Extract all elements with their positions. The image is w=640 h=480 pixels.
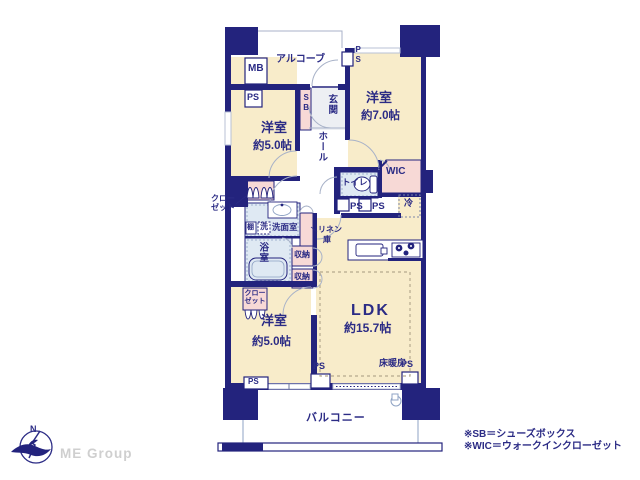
label-hall: ホール bbox=[316, 131, 326, 163]
label-shoebox: SB bbox=[301, 93, 310, 113]
pillar-east-mid bbox=[426, 170, 433, 193]
wall-hall-west bbox=[295, 84, 300, 151]
kitchen-sink bbox=[356, 244, 383, 256]
linen-closet-box bbox=[300, 213, 313, 246]
closet-south-line1: クロー bbox=[245, 290, 266, 297]
toilet-tank bbox=[370, 176, 377, 193]
wall-ldk-west bbox=[313, 213, 317, 286]
pillar-bottom-left bbox=[223, 388, 258, 420]
bird-wing-icon bbox=[28, 440, 38, 446]
pillar-top-right bbox=[400, 25, 440, 57]
bird-icon bbox=[11, 444, 51, 456]
label-storage-a: 収納 bbox=[294, 251, 310, 260]
label-storage-b: 収納 bbox=[294, 273, 310, 282]
legend-note-wic: ※WIC＝ウォークインクローゼット bbox=[464, 442, 622, 453]
label-linen-1: リネン bbox=[318, 226, 342, 235]
label-alcove: アルコーブ bbox=[276, 55, 325, 66]
ps-box-entry bbox=[342, 52, 353, 66]
pillar-top-left bbox=[225, 27, 258, 55]
label-bedroom-south: 洋室 bbox=[261, 314, 287, 328]
wall-bedroom-south-east-a bbox=[311, 281, 317, 287]
alcove-outline bbox=[258, 31, 342, 48]
label-balcony: バルコニー bbox=[306, 413, 366, 425]
label-ps-bottom-center: PS bbox=[313, 362, 325, 372]
label-ps-mid-1: PS bbox=[350, 202, 363, 212]
label-ps-bottom-right: PS bbox=[401, 360, 413, 370]
balcony-railing-solid bbox=[222, 443, 263, 451]
balcony-faucet-base bbox=[392, 394, 398, 400]
label-bath: 浴室 bbox=[257, 242, 267, 263]
closet-callout-line2: ゼット bbox=[211, 203, 235, 212]
label-bedroom-south-size: 約5.0帖 bbox=[252, 336, 291, 348]
ps-box-bottom-right bbox=[402, 372, 418, 384]
counter-edge bbox=[388, 258, 423, 261]
logo-mark bbox=[11, 431, 52, 463]
label-genkan: 玄関 bbox=[326, 94, 336, 115]
label-ldk: LDK bbox=[351, 302, 390, 319]
label-bedroom-west: 洋室 bbox=[261, 121, 287, 135]
label-fridge: 冷 bbox=[404, 199, 413, 209]
window-west bbox=[225, 112, 231, 145]
floorplan-page: MB PS アルコーブ PS SB 玄関 ホール 洋室 約7.0帖 洋室 約5.… bbox=[0, 0, 640, 480]
wall-east bbox=[421, 57, 426, 388]
label-bedroom-north: 洋室 bbox=[366, 91, 392, 105]
label-closet-south: クローゼット bbox=[243, 290, 267, 305]
label-ps-bottom-left: PS bbox=[248, 378, 259, 387]
wall-washroom-bath bbox=[245, 236, 300, 238]
label-ps-top-left: PS bbox=[247, 93, 259, 103]
closet-south-line2: ゼット bbox=[245, 298, 266, 305]
wall-bedroom-south-north bbox=[225, 281, 316, 287]
label-wic: WIC bbox=[386, 167, 405, 178]
ps-box-mid-1 bbox=[337, 199, 349, 211]
wall-bedroom-north-south bbox=[334, 167, 380, 172]
label-bedroom-west-size: 約5.0帖 bbox=[253, 140, 292, 152]
label-ps-mid-2: PS bbox=[372, 202, 385, 212]
company-logo-text: ME Group bbox=[60, 447, 133, 462]
label-meter-box: MB bbox=[248, 64, 264, 75]
floorplan-drawing bbox=[0, 0, 640, 480]
label-ps-entry: PS bbox=[353, 45, 362, 65]
stove-burner-2-dot bbox=[410, 245, 412, 247]
kitchen-faucet bbox=[381, 248, 387, 254]
stove-burner-1-dot bbox=[398, 247, 400, 249]
pillar-bottom-right bbox=[402, 388, 440, 420]
label-linen-2: 庫 bbox=[323, 236, 331, 245]
wall-west bbox=[225, 55, 231, 388]
label-bedroom-north-size: 約7.0帖 bbox=[361, 110, 400, 122]
label-toilet: トイレ bbox=[342, 178, 368, 187]
wall-toilet-south bbox=[340, 196, 378, 198]
wall-kitchen-north bbox=[341, 213, 401, 218]
label-closet-callout: クローゼット bbox=[203, 195, 235, 212]
label-ldk-size: 約15.7帖 bbox=[344, 322, 391, 335]
vanity-faucet bbox=[281, 204, 284, 207]
legend-note-sb: ※SB＝シューズボックス bbox=[464, 430, 575, 441]
label-washroom: 洗面室 bbox=[272, 223, 298, 232]
label-washer: 洗 bbox=[260, 223, 268, 232]
stove-burner-3 bbox=[404, 251, 409, 256]
compass-north-label: N bbox=[30, 425, 37, 435]
label-shelf: 棚 bbox=[247, 224, 254, 232]
